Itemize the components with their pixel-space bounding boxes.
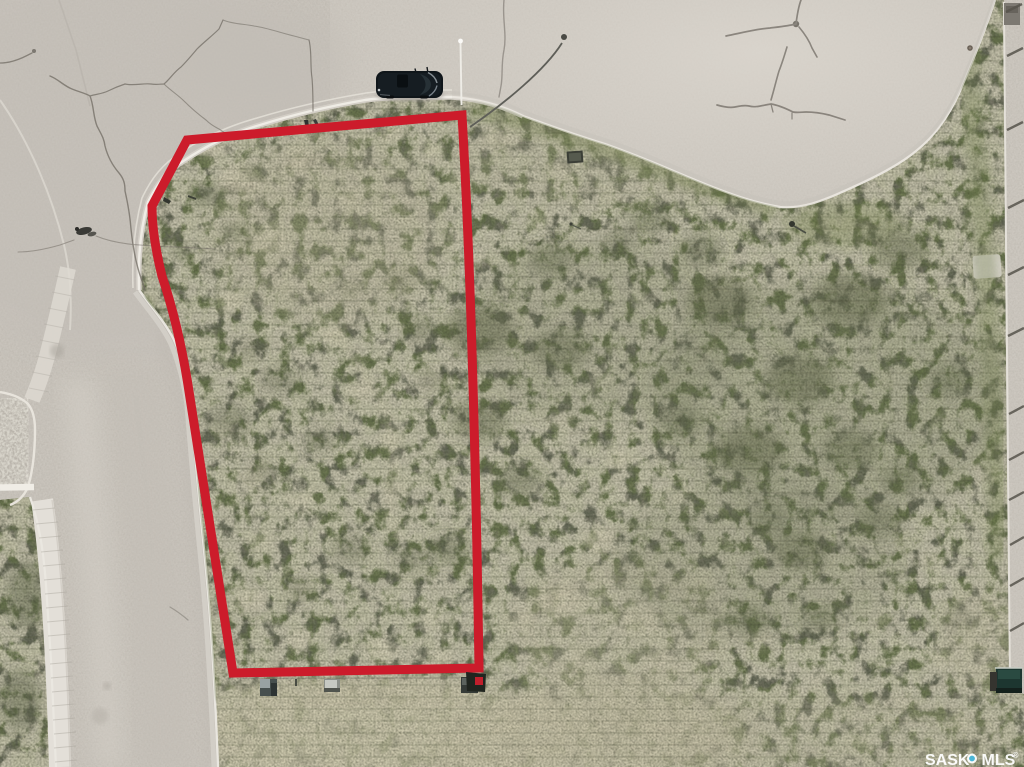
- svg-text:SASK: SASK: [925, 752, 970, 767]
- svg-text:MLS: MLS: [982, 752, 1016, 767]
- svg-text:®: ®: [1013, 751, 1019, 760]
